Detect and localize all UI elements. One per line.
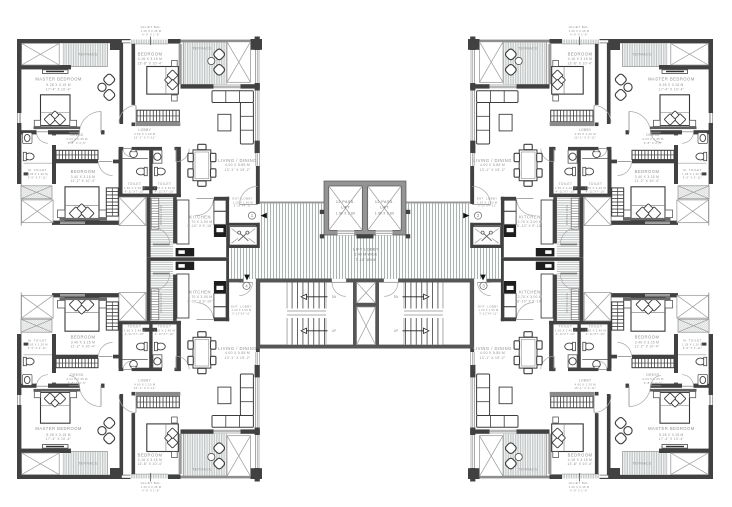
svg-text:BEDROOM: BEDROOM	[635, 169, 660, 174]
svg-text:KITCHEN: KITCHEN	[189, 214, 211, 219]
svg-text:KITCHEN: KITCHEN	[519, 289, 541, 294]
svg-text:4'-11"X7'-10": 4'-11"X7'-10"	[556, 332, 576, 336]
svg-text:DRY BAL 0.90 W: DRY BAL 0.90 W	[565, 205, 569, 225]
svg-text:ENT. LOBBY: ENT. LOBBY	[231, 305, 252, 309]
svg-text:8'-10" X 9'-10": 8'-10" X 9'-10"	[517, 224, 543, 228]
svg-text:LIVING / DINING: LIVING / DINING	[473, 346, 512, 351]
svg-text:13'-8" X 10'-4": 13'-8" X 10'-4"	[137, 462, 163, 466]
svg-text:JULIET BAL.: JULIET BAL.	[568, 481, 590, 485]
svg-text:1.90 X 2.60: 1.90 X 2.60	[336, 211, 356, 215]
svg-text:BEDROOM: BEDROOM	[138, 51, 163, 56]
svg-text:MASTER BEDROOM: MASTER BEDROOM	[35, 76, 82, 81]
svg-text:JULIET BAL.: JULIET BAL.	[140, 481, 162, 485]
svg-text:1.05 X 1.20 M: 1.05 X 1.20 M	[27, 342, 48, 346]
svg-text:15'-1" X 3'-11": 15'-1" X 3'-11"	[134, 386, 156, 390]
svg-text:13'-8" X 10'-4": 13'-8" X 10'-4"	[567, 61, 593, 65]
svg-text:DN: DN	[394, 295, 399, 299]
svg-text:JULIET BAL.: JULIET BAL.	[140, 25, 162, 29]
svg-text:JULIET BAL.: JULIET BAL.	[568, 25, 590, 29]
svg-text:4'-11"X7'-10": 4'-11"X7'-10"	[556, 189, 576, 193]
svg-text:17'-4" X 10'-4": 17'-4" X 10'-4"	[659, 437, 685, 441]
svg-text:5.28 X 3.15 M: 5.28 X 3.15 M	[46, 83, 70, 87]
svg-text:DRY BAL 0.90 W: DRY BAL 0.90 W	[159, 205, 163, 225]
svg-text:BEDROOM: BEDROOM	[568, 452, 593, 457]
svg-text:4'-11"X7'-10": 4'-11"X7'-10"	[586, 332, 606, 336]
svg-text:15'-1" X 3'-11": 15'-1" X 3'-11"	[574, 386, 596, 390]
svg-text:3'-5" X 3'-11": 3'-5" X 3'-11"	[28, 175, 47, 179]
svg-text:13'-1" X 19'-2": 13'-1" X 19'-2"	[225, 356, 251, 360]
svg-text:17'-4" X 10'-4": 17'-4" X 10'-4"	[659, 88, 685, 92]
svg-text:BEDROOM: BEDROOM	[568, 51, 593, 56]
svg-text:4'-0" X 1'-6": 4'-0" X 1'-6"	[570, 33, 588, 37]
svg-text:MASTER BEDROOM: MASTER BEDROOM	[648, 426, 695, 431]
svg-text:LIFT: LIFT	[341, 206, 350, 210]
svg-text:4'-11"X7'-10": 4'-11"X7'-10"	[125, 332, 145, 336]
svg-text:5.28 X 3.15 M: 5.28 X 3.15 M	[659, 433, 683, 437]
svg-text:BEDROOM: BEDROOM	[635, 335, 660, 340]
svg-text:6'-8" X 4'-5": 6'-8" X 4'-5"	[68, 381, 86, 385]
svg-text:12 PASS.: 12 PASS.	[336, 200, 355, 204]
svg-text:LIFT LOBBY: LIFT LOBBY	[353, 247, 379, 251]
svg-text:M. TOILET: M. TOILET	[683, 168, 702, 172]
svg-text:M. TOILET: M. TOILET	[683, 339, 702, 343]
svg-text:3'-11"X4'-11": 3'-11"X4'-11"	[234, 204, 252, 208]
svg-text:4'-11"X7'-10": 4'-11"X7'-10"	[125, 189, 145, 193]
svg-text:ENT. LOBBY: ENT. LOBBY	[477, 197, 498, 201]
svg-text:KITCHEN: KITCHEN	[519, 214, 541, 219]
svg-text:1.05 X 1.20 M: 1.05 X 1.20 M	[682, 172, 703, 176]
svg-text:8'-10" X 9'-10": 8'-10" X 9'-10"	[517, 299, 543, 303]
svg-text:TERRACE: TERRACE	[192, 468, 212, 472]
svg-text:4'-11"X7'-10": 4'-11"X7'-10"	[155, 189, 175, 193]
svg-text:1.20 X 0.45 M: 1.20 X 0.45 M	[141, 29, 162, 33]
svg-text:17'-4" X 10'-4": 17'-4" X 10'-4"	[46, 437, 72, 441]
svg-text:6'-8" X 4'-5": 6'-8" X 4'-5"	[644, 381, 662, 385]
svg-text:13'-1" X 19'-2": 13'-1" X 19'-2"	[225, 168, 251, 172]
svg-text:17'-4" X 10'-4": 17'-4" X 10'-4"	[46, 88, 72, 92]
svg-text:DRY BAL 0.90 W: DRY BAL 0.90 W	[159, 293, 163, 313]
svg-text:5.28 X 3.15 M: 5.28 X 3.15 M	[46, 433, 70, 437]
svg-text:1.90 X 2.60: 1.90 X 2.60	[375, 211, 395, 215]
svg-text:3'-11"X4'-11": 3'-11"X4'-11"	[479, 311, 497, 315]
svg-text:11'-2" X 10'-4": 11'-2" X 10'-4"	[634, 344, 660, 348]
svg-text:6'-8" X 4'-5": 6'-8" X 4'-5"	[68, 141, 86, 145]
svg-text:TERRACE: TERRACE	[518, 47, 538, 51]
svg-text:1.05 X 1.20 M: 1.05 X 1.20 M	[682, 342, 703, 346]
svg-text:1.20 X 0.45 M: 1.20 X 0.45 M	[141, 485, 162, 489]
svg-text:1.20 X 0.45 M: 1.20 X 0.45 M	[569, 29, 590, 33]
svg-text:12 PASS.: 12 PASS.	[375, 200, 394, 204]
svg-text:4'-0" X 1'-6": 4'-0" X 1'-6"	[142, 489, 160, 493]
svg-text:1.20 X 0.45 M: 1.20 X 0.45 M	[569, 485, 590, 489]
svg-text:4.00 X 5.85 M: 4.00 X 5.85 M	[480, 163, 505, 167]
svg-text:3'-11"X4'-11": 3'-11"X4'-11"	[478, 204, 496, 208]
svg-text:15'-1" X 3'-11": 15'-1" X 3'-11"	[574, 136, 596, 140]
svg-text:M. TOILET: M. TOILET	[28, 168, 47, 172]
svg-text:13'-1" X 19'-2": 13'-1" X 19'-2"	[480, 168, 506, 172]
svg-text:3'-5" X 3'-11": 3'-5" X 3'-11"	[683, 175, 702, 179]
svg-text:BEDROOM: BEDROOM	[71, 335, 96, 340]
svg-text:LIVING / DINING: LIVING / DINING	[218, 346, 257, 351]
svg-text:DN: DN	[332, 295, 337, 299]
svg-text:3'-11"X4'-11": 3'-11"X4'-11"	[232, 311, 250, 315]
svg-text:TERRACE: TERRACE	[192, 47, 212, 51]
svg-text:BEDROOM: BEDROOM	[138, 452, 163, 457]
svg-text:KITCHEN: KITCHEN	[189, 289, 211, 294]
svg-text:6'-8" X 4'-5": 6'-8" X 4'-5"	[644, 141, 662, 145]
svg-text:4'-0" X 1'-6": 4'-0" X 1'-6"	[142, 33, 160, 37]
svg-text:8'-10" X 9'-10": 8'-10" X 9'-10"	[188, 299, 214, 303]
svg-text:13'-8" X 10'-4": 13'-8" X 10'-4"	[567, 462, 593, 466]
svg-text:4'-11"X7'-10": 4'-11"X7'-10"	[155, 332, 175, 336]
svg-text:2.40 M WIDE: 2.40 M WIDE	[355, 253, 378, 257]
svg-text:MASTER BEDROOM: MASTER BEDROOM	[35, 426, 82, 431]
svg-text:4.00 X 5.85 M: 4.00 X 5.85 M	[225, 163, 250, 167]
svg-text:TERRACE: TERRACE	[518, 468, 538, 472]
svg-text:13'-1" X 19'-2": 13'-1" X 19'-2"	[480, 356, 506, 360]
svg-text:3'-5" X 3'-11": 3'-5" X 3'-11"	[683, 346, 702, 350]
svg-text:4.00 X 5.85 M: 4.00 X 5.85 M	[225, 351, 250, 355]
svg-text:8'-10" X 9'-10": 8'-10" X 9'-10"	[188, 224, 214, 228]
svg-text:DRY BAL 0.90 W: DRY BAL 0.90 W	[565, 293, 569, 313]
svg-text:MASTER BEDROOM: MASTER BEDROOM	[648, 76, 695, 81]
svg-text:3'-5" X 3'-11": 3'-5" X 3'-11"	[28, 346, 47, 350]
svg-text:LIFT: LIFT	[380, 206, 389, 210]
svg-text:4'-11"X7'-10": 4'-11"X7'-10"	[586, 189, 606, 193]
svg-text:LIVING / DINING: LIVING / DINING	[473, 158, 512, 163]
svg-text:11'-2" X 10'-4": 11'-2" X 10'-4"	[634, 179, 660, 183]
svg-text:11'-2" X 10'-4": 11'-2" X 10'-4"	[70, 344, 96, 348]
svg-text:5.28 X 3.15 M: 5.28 X 3.15 M	[659, 83, 683, 87]
svg-text:13'-8" X 10'-4": 13'-8" X 10'-4"	[137, 61, 163, 65]
svg-text:ENT. LOBBY: ENT. LOBBY	[478, 305, 499, 309]
svg-text:TERRACE: TERRACE	[78, 53, 98, 57]
svg-text:1.05 X 1.20 M: 1.05 X 1.20 M	[27, 172, 48, 176]
svg-text:BEDROOM: BEDROOM	[71, 169, 96, 174]
svg-text:4.00 X 5.85 M: 4.00 X 5.85 M	[480, 351, 505, 355]
svg-text:UP: UP	[394, 329, 398, 333]
svg-text:15'-1" X 3'-11": 15'-1" X 3'-11"	[134, 136, 156, 140]
svg-text:11'-2" X 10'-4": 11'-2" X 10'-4"	[70, 179, 96, 183]
svg-text:ENT. LOBBY: ENT. LOBBY	[232, 197, 253, 201]
svg-text:LIVING / DINING: LIVING / DINING	[218, 158, 257, 163]
svg-text:TERRACE: TERRACE	[632, 53, 652, 57]
svg-text:UP: UP	[332, 329, 336, 333]
svg-text:7'-10" WIDE: 7'-10" WIDE	[355, 258, 377, 262]
svg-text:TERRACE: TERRACE	[78, 462, 98, 466]
svg-text:TERRACE: TERRACE	[632, 462, 652, 466]
svg-text:4'-0" X 1'-6": 4'-0" X 1'-6"	[570, 489, 588, 493]
svg-text:M. TOILET: M. TOILET	[28, 339, 47, 343]
